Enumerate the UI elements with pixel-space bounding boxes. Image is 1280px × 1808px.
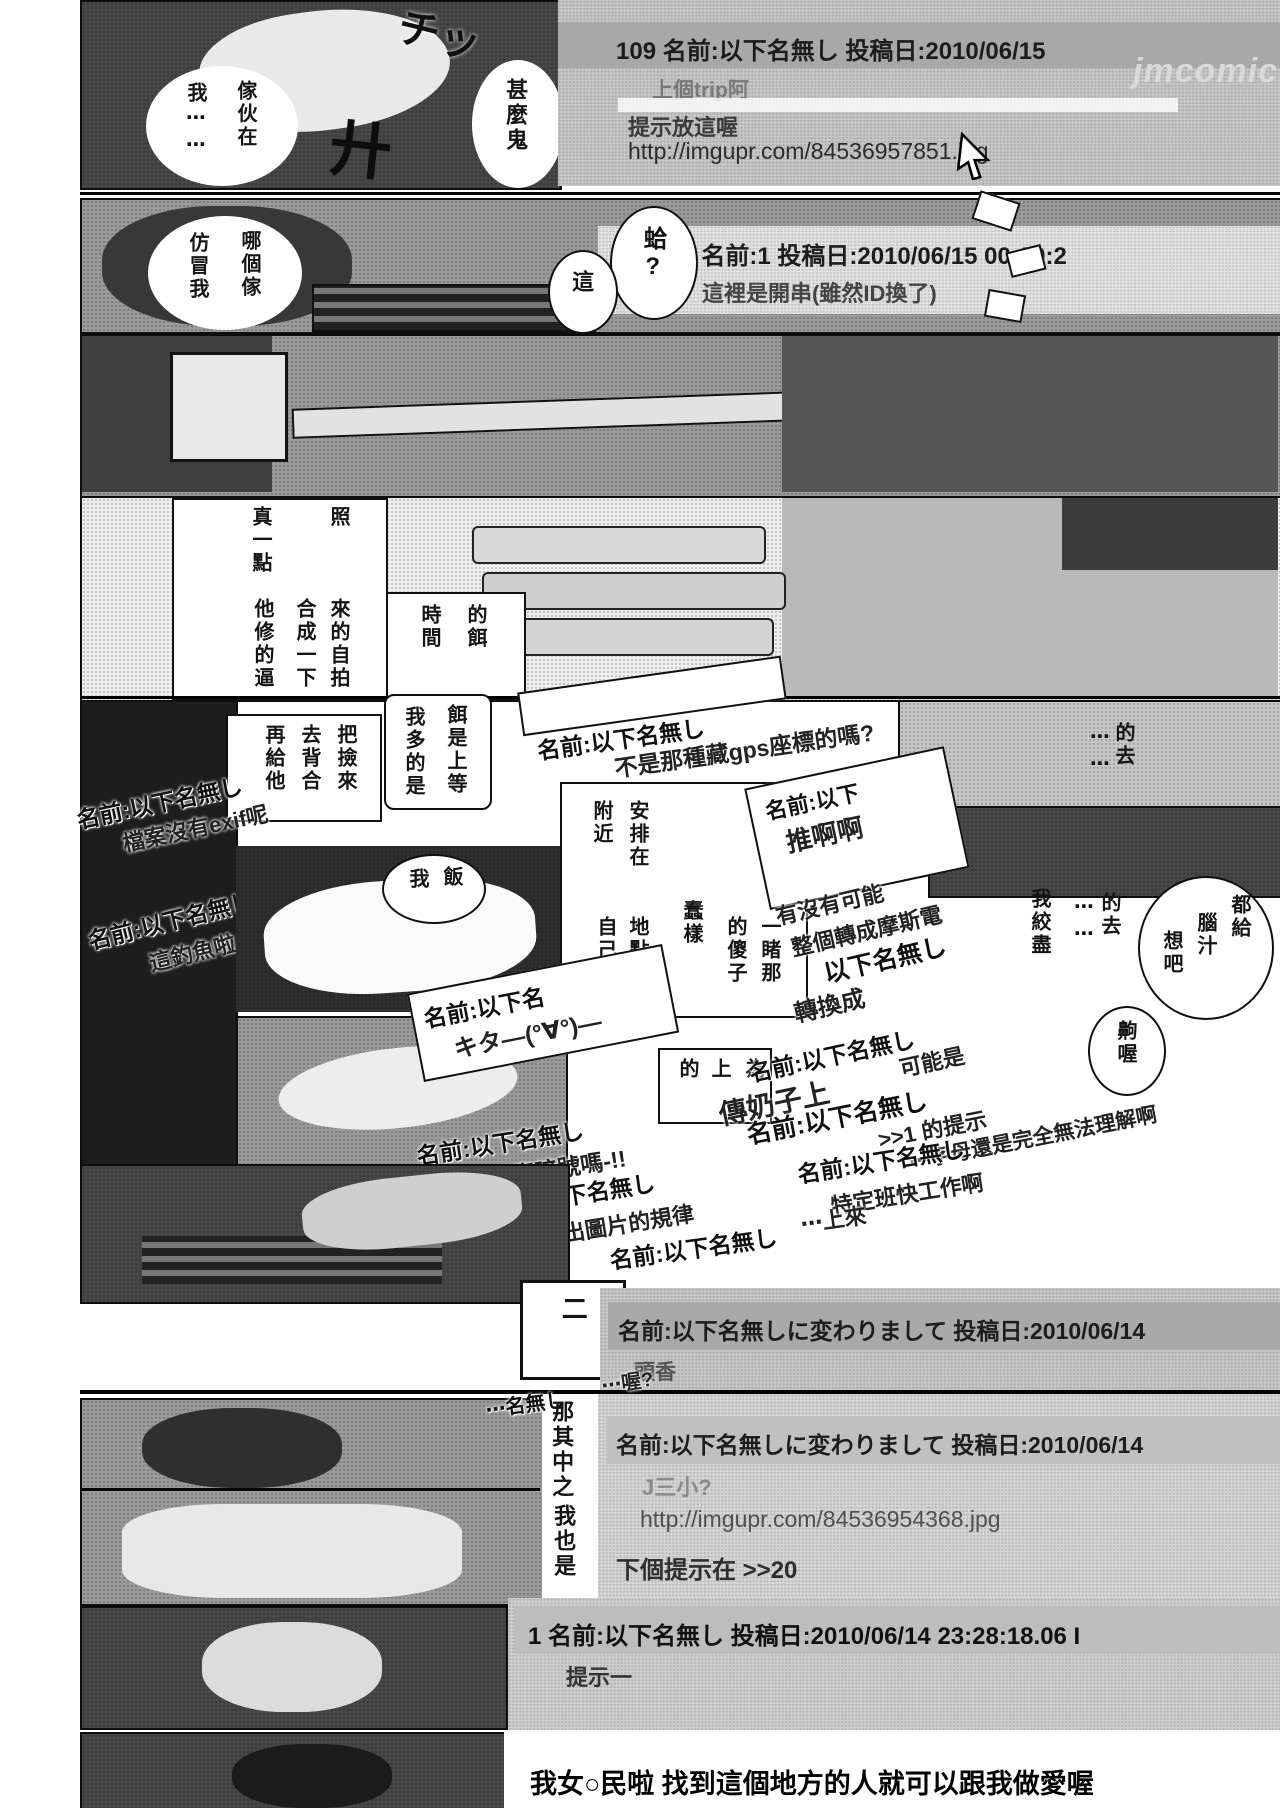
caption-col: 的傻子 [724,916,745,985]
bubble-text-col: 腦汁 [1194,912,1215,958]
forum-panel-kawa2: 名前:以下名無しに変わりまして 投稿日:2010/06/14 J三小? http… [598,1394,1280,1606]
bubble-text-col: 我多的是 [402,706,423,798]
caption-col: 他修的逼 [251,598,272,690]
fragment-col: ⋯⋯ [1072,894,1093,948]
cursor-icon [953,132,995,183]
speech-bubble-imposter-1: 傢伙在 我⋯⋯ [146,66,298,186]
panel-art-dark-portrait [80,1732,526,1808]
panel-art-desk [80,334,1280,498]
monitor-art [170,352,288,462]
fragment-col: 我絞盡 [1028,888,1049,957]
caption-col: 的餌 [464,604,485,650]
post1-header-bar: 1 名前:以下名無し 投稿日:2010/06/14 23:28:18.06 I [514,1606,1280,1654]
kawa2-header: 名前:以下名無しに変わりまして 投稿日:2010/06/14 [616,1426,1143,1460]
bubble-text-col: 齁喔 [1114,1020,1135,1066]
inner-divider [82,1488,540,1491]
caption-col: 蠢樣 [680,900,701,946]
forum-strip-108: 08 名前:1 投稿日:2010/06/15 00:00:2 這裡是開串(雖然I… [598,226,1280,314]
post1-body: 提示一 [566,1660,632,1692]
caption-col: 合成一下 [293,598,314,690]
bubble-text-col: 飯 [440,866,461,889]
opening-post-text: 我女○民啦 找到這個地方的人就可以跟我做愛喔 [530,1762,1094,1801]
kawa2-url: http://imgupr.com/84536954368.jpg [640,1506,1001,1533]
caption-box-photo: 照 真一點 來的自拍 合成一下 他修的逼 [172,498,388,700]
speech-bubble-this: 這 [548,250,618,334]
post-109-url: http://imgupr.com/84536957851.jpg [628,138,989,165]
watermark-jmcomic: jmcomic [1133,52,1278,91]
shirt-shape [122,1504,462,1598]
face-shape [202,1622,382,1712]
post-109-header: 109 名前:以下名無し 投稿日:2010/06/15 [616,31,1045,66]
speech-bubble-think: 都給 腦汁 想吧 [1138,876,1274,1020]
hair-shape [142,1408,342,1488]
caption-col: 附近 [590,800,611,846]
book-spine [472,526,766,564]
kawa2-header-bar: 名前:以下名無しに変わりまして 投稿日:2010/06/14 [606,1416,1280,1464]
caption-col-metoo: 我也是 [552,1504,575,1579]
fragment-col: 的去 [1098,892,1119,938]
bubble-text-col: 仿冒我 [186,232,207,301]
caption-col: 二 [559,1295,586,1324]
caption-col: 真一點 [249,506,270,575]
fragment-col: 的去 [1112,722,1133,768]
bubble-text-col: 蛤? [640,226,665,283]
panel-divider [80,192,1280,195]
fragment-cols-1: 的去 ⋯⋯ [1084,718,1140,794]
panel-art-smirk [80,1606,508,1730]
bubble-text-col: 甚麼鬼 [504,78,527,153]
kawa2-body: J三小? [642,1470,712,1502]
bubble-text-col: 我 [406,868,427,891]
bubble-text-col: 這 [570,270,593,295]
forum-panel-109: 109 名前:以下名無し 投稿日:2010/06/15 上個trip阿 提示放這… [558,0,1280,186]
bubble-text-col: 想吧 [1160,930,1181,976]
speech-bubble-ha: 蛤? [610,206,698,320]
kawa1-header: 名前:以下名無しに変わりまして 投稿日:2010/06/14 [618,1312,1145,1346]
caption-col: 時間 [418,604,439,650]
bubble-text-col: 哪個傢 [238,230,259,299]
bubble-text-col: 都給 [1228,894,1249,940]
dark-hair-art [1062,498,1278,570]
speech-bubble-rice: 飯 我 [382,854,486,924]
fragment-col: ⋯⋯ [1088,724,1109,778]
panel-art-typing-hands [80,1164,570,1304]
caption-col: 來的自拍 [327,598,348,690]
manga-page: 廾 チッ 傢伙在 我⋯⋯ 甚麼鬼 109 名前:以下名無し 投稿日:2010/0… [0,0,1280,1808]
forum-panel-post1: 1 名前:以下名無し 投稿日:2010/06/14 23:28:18.06 I … [508,1598,1280,1730]
caption-col-naka: 那其中之 [550,1400,573,1500]
panel-art-portrait [80,1398,546,1606]
book-spine [482,572,786,610]
forum-panel-kawa1: 名前:以下名無しに変わりまして 投稿日:2010/06/14 頭香 [600,1288,1280,1392]
speech-bubble-hmm: 齁喔 [1088,1006,1166,1096]
speech-box-bait-plenty: 餌是上等 我多的是 [384,694,492,810]
post-line: 轉換成 [790,978,868,1028]
speech-bubble-what: 甚麼鬼 [472,60,564,188]
bubble-text-col: 傢伙在 [234,80,255,149]
hands-shape [299,1165,525,1258]
post-108-body: 這裡是開串(雖然ID換了) [702,276,937,308]
caption-box-bait-time: 的餌 時間 [386,592,526,700]
kawa1-header-bar: 名前:以下名無しに変わりまして 投稿日:2010/06/14 [608,1302,1280,1350]
dark-head-shape [232,1744,392,1808]
caption-col: 照 [327,506,348,529]
opening-post-area: 我女○民啦 找到這個地方的人就可以跟我做愛喔 [504,1730,1280,1808]
caption-col: 的 [676,1058,697,1081]
caption-col: 安排在 [626,800,647,869]
bubble-text-col: 我⋯⋯ [184,82,205,159]
kawa2-hint: 下個提示在 >>20 [616,1550,797,1585]
arm-photo-art [292,391,797,439]
bubble-text-col: 餌是上等 [444,704,465,796]
post1-header: 1 名前:以下名無し 投稿日:2010/06/14 23:28:18.06 I [528,1616,1080,1651]
cross-mark-sfx: 廾 [325,97,396,193]
shelf-dark-art [782,336,1278,492]
speech-bubble-imposter-2: 哪個傢 仿冒我 [148,216,302,330]
fragment-cols-2: 的去 ⋯⋯ 我絞盡 [1018,886,1130,978]
